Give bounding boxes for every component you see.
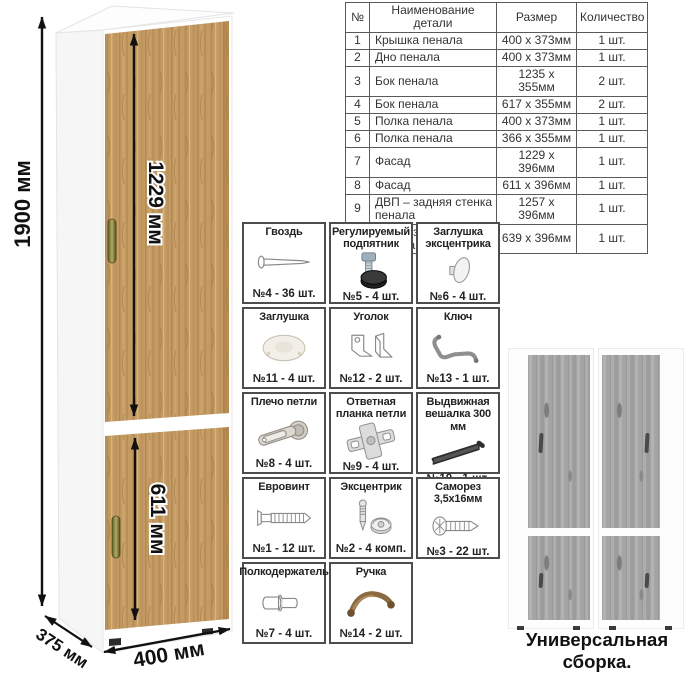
- parts-table-cell: 1 шт.: [577, 32, 648, 49]
- hardware-item-count: №2 - 4 комп.: [336, 543, 406, 555]
- variant-left-lower-handle: [539, 573, 544, 588]
- parts-table-cell: 1 шт.: [577, 194, 648, 224]
- hardware-item-name: Заглушка: [258, 310, 309, 323]
- parts-table-row: 1Крышка пенала400 х 373мм1 шт.: [346, 32, 648, 49]
- hardware-item-name: Уголок: [352, 310, 389, 323]
- cabinet-body: [56, 6, 234, 653]
- hardware-item-name: Регулируемый подпятник: [331, 225, 411, 251]
- hardware-item: Евровинт№1 - 12 шт.: [242, 477, 326, 559]
- hardware-item: Уголок№12 - 2 шт.: [329, 307, 413, 389]
- parts-table-cell: 2: [346, 49, 370, 66]
- lower-fasad-dim-label: 611 мм: [146, 484, 169, 555]
- self-tapping-screw-icon: [418, 506, 498, 546]
- parts-table-cell: 400 х 373мм: [497, 49, 577, 66]
- hardware-item: Регулируемый подпятник№5 - 4 шт.: [329, 222, 413, 304]
- cabinet-drawing: 1900 мм 1229 мм 611 мм 375 мм 400 мм: [0, 0, 245, 683]
- upper-door-handle: [108, 219, 116, 263]
- variants-caption: Универсальная сборка.: [494, 629, 700, 673]
- hardware-item-count: №7 - 4 шт.: [256, 628, 312, 640]
- hardware-item-name: Гвоздь: [264, 225, 303, 238]
- hardware-item: Выдвижная вешалка 300 мм№10 - 1 шт.: [416, 392, 500, 474]
- variant-cabinet-left: [508, 348, 594, 629]
- hardware-item-count: №14 - 2 шт.: [340, 628, 403, 640]
- cap-icon: [244, 323, 324, 373]
- cam-cover-icon: [418, 251, 498, 291]
- hardware-item-count: №6 - 4 шт.: [430, 291, 486, 303]
- parts-table-row: 6Полка пенала366 х 355мм1 шт.: [346, 130, 648, 147]
- pullout-hanger-icon: [418, 433, 498, 473]
- upper-door-edge: [223, 21, 229, 414]
- parts-table-cell: 4: [346, 96, 370, 113]
- parts-table-row: 8Фасад611 х 396мм1 шт.: [346, 177, 648, 194]
- parts-table-cell: 1257 х 396мм: [497, 194, 577, 224]
- parts-table-cell: Бок пенала: [370, 96, 497, 113]
- variant-cabinet-right: [598, 348, 684, 629]
- hardware-item: Саморез 3,5х16мм№3 - 22 шт.: [416, 477, 500, 559]
- parts-table-cell: 3: [346, 66, 370, 96]
- hardware-item-count: №13 - 1 шт.: [427, 373, 490, 385]
- parts-table-cell: 1 шт.: [577, 147, 648, 177]
- parts-table-row: 9ДВП – задняя стенка пенала1257 х 396мм1…: [346, 194, 648, 224]
- variant-left-upper-door: [528, 355, 590, 528]
- parts-table-header: №: [346, 3, 370, 33]
- variant-right-lower-handle: [645, 573, 650, 588]
- parts-table-cell: 1 шт.: [577, 130, 648, 147]
- parts-table-cell: 366 х 355мм: [497, 130, 577, 147]
- hardware-item-count: №11 - 4 шт.: [253, 373, 315, 385]
- hardware-item: Ручка№14 - 2 шт.: [329, 562, 413, 644]
- parts-table-cell: 9: [346, 194, 370, 224]
- parts-table-header-row: №Наименование деталиРазмерКоличество: [346, 3, 648, 33]
- adjustable-foot-icon: [331, 251, 411, 291]
- parts-table-cell: 1 шт.: [577, 224, 648, 254]
- parts-table-row: 5Полка пенала400 х 373мм1 шт.: [346, 113, 648, 130]
- hinge-plate-icon: [331, 421, 411, 461]
- height-dim-label: 1900 мм: [10, 160, 35, 248]
- lower-door-handle: [112, 516, 120, 558]
- confirmat-screw-icon: [244, 493, 324, 543]
- hardware-item-name: Ручка: [355, 565, 387, 578]
- hardware-item-count: №12 - 2 шт.: [340, 373, 403, 385]
- parts-table-cell: 8: [346, 177, 370, 194]
- parts-table-cell: Полка пенала: [370, 130, 497, 147]
- hardware-grid: Гвоздь№4 - 36 шт.Регулируемый подпятник№…: [242, 222, 500, 644]
- parts-table-cell: 617 х 355мм: [497, 96, 577, 113]
- cabinet-foot: [109, 638, 121, 646]
- parts-table-cell: Полка пенала: [370, 113, 497, 130]
- upper-fasad-dim-label: 1229 мм: [144, 161, 167, 245]
- hardware-item: Заглушка эксцентрика№6 - 4 шт.: [416, 222, 500, 304]
- hardware-item-name: Выдвижная вешалка 300 мм: [418, 395, 498, 433]
- hardware-item: Ответная планка петли№9 - 4 шт.: [329, 392, 413, 474]
- hardware-item-name: Ответная планка петли: [331, 395, 411, 421]
- hardware-item: Заглушка№11 - 4 шт.: [242, 307, 326, 389]
- hardware-item-name: Евровинт: [257, 480, 311, 493]
- parts-table-cell: ДВП – задняя стенка пенала: [370, 194, 497, 224]
- parts-table-cell: Фасад: [370, 147, 497, 177]
- parts-table-cell: 400 х 373мм: [497, 113, 577, 130]
- assembly-sheet: 1900 мм 1229 мм 611 мм 375 мм 400 мм №На…: [0, 0, 700, 683]
- parts-table-cell: Дно пенала: [370, 49, 497, 66]
- variant-right-lower-door: [602, 536, 660, 620]
- corner-bracket-icon: [331, 323, 411, 373]
- parts-table-cell: 400 х 373мм: [497, 32, 577, 49]
- cabinet-side-panel: [56, 30, 103, 653]
- hardware-item-count: №1 - 12 шт.: [253, 543, 316, 555]
- parts-table-cell: 1 шт.: [577, 113, 648, 130]
- parts-table-row: 3Бок пенала1235 х 355мм2 шт.: [346, 66, 648, 96]
- hardware-item-name: Полкодержатель: [238, 565, 329, 578]
- hardware-item: Эксцентрик№2 - 4 комп.: [329, 477, 413, 559]
- parts-table-cell: 2 шт.: [577, 66, 648, 96]
- parts-table-row: 7Фасад1229 х 396мм1 шт.: [346, 147, 648, 177]
- hardware-item-name: Плечо петли: [250, 395, 318, 408]
- parts-table-cell: 1 шт.: [577, 177, 648, 194]
- parts-table-cell: 639 х 396мм: [497, 224, 577, 254]
- parts-table-cell: 1235 х 355мм: [497, 66, 577, 96]
- parts-table-row: 4Бок пенала617 х 355мм2 шт.: [346, 96, 648, 113]
- parts-table-cell: 1229 х 396мм: [497, 147, 577, 177]
- parts-table-header: Количество: [577, 3, 648, 33]
- hardware-item: Гвоздь№4 - 36 шт.: [242, 222, 326, 304]
- hinge-arm-icon: [244, 408, 324, 458]
- hardware-item-name: Ключ: [443, 310, 473, 323]
- nail-icon: [244, 238, 324, 288]
- hardware-item: Ключ№13 - 1 шт.: [416, 307, 500, 389]
- hardware-item-count: №3 - 22 шт.: [427, 546, 490, 558]
- variant-right-upper-door: [602, 355, 660, 528]
- parts-table-cell: 611 х 396мм: [497, 177, 577, 194]
- parts-table-cell: 6: [346, 130, 370, 147]
- variant-left-lower-door: [528, 536, 590, 620]
- hardware-item-count: №5 - 4 шт.: [343, 291, 399, 303]
- hardware-item: Полкодержатель№7 - 4 шт.: [242, 562, 326, 644]
- parts-table: №Наименование деталиРазмерКоличество 1Кр…: [345, 2, 648, 254]
- parts-table-body: 1Крышка пенала400 х 373мм1 шт.2Дно пенал…: [346, 32, 648, 254]
- parts-table-cell: 7: [346, 147, 370, 177]
- hardware-item-name: Эксцентрик: [339, 480, 402, 493]
- parts-table-cell: Крышка пенала: [370, 32, 497, 49]
- parts-table-header: Наименование детали: [370, 3, 497, 33]
- hardware-item-name: Заглушка эксцентрика: [418, 225, 498, 251]
- parts-table-cell: Бок пенала: [370, 66, 497, 96]
- parts-table-cell: Фасад: [370, 177, 497, 194]
- hardware-item-count: №8 - 4 шт.: [256, 458, 312, 470]
- parts-table-cell: 5: [346, 113, 370, 130]
- hardware-item: Плечо петли№8 - 4 шт.: [242, 392, 326, 474]
- hardware-item-count: №9 - 4 шт.: [343, 461, 399, 473]
- parts-table-cell: 2 шт.: [577, 96, 648, 113]
- hex-key-icon: [418, 323, 498, 373]
- lower-door-edge: [223, 427, 229, 620]
- parts-table-cell: 1: [346, 32, 370, 49]
- parts-table-cell: 1 шт.: [577, 49, 648, 66]
- cam-lock-icon: [331, 493, 411, 543]
- assembly-variants: [495, 338, 700, 638]
- parts-table-row: 2Дно пенала400 х 373мм1 шт.: [346, 49, 648, 66]
- hardware-item-count: №4 - 36 шт.: [253, 288, 316, 300]
- parts-table-header: Размер: [497, 3, 577, 33]
- hardware-item-name: Саморез 3,5х16мм: [418, 480, 498, 506]
- shelf-pin-icon: [244, 578, 324, 628]
- handle-icon: [331, 578, 411, 628]
